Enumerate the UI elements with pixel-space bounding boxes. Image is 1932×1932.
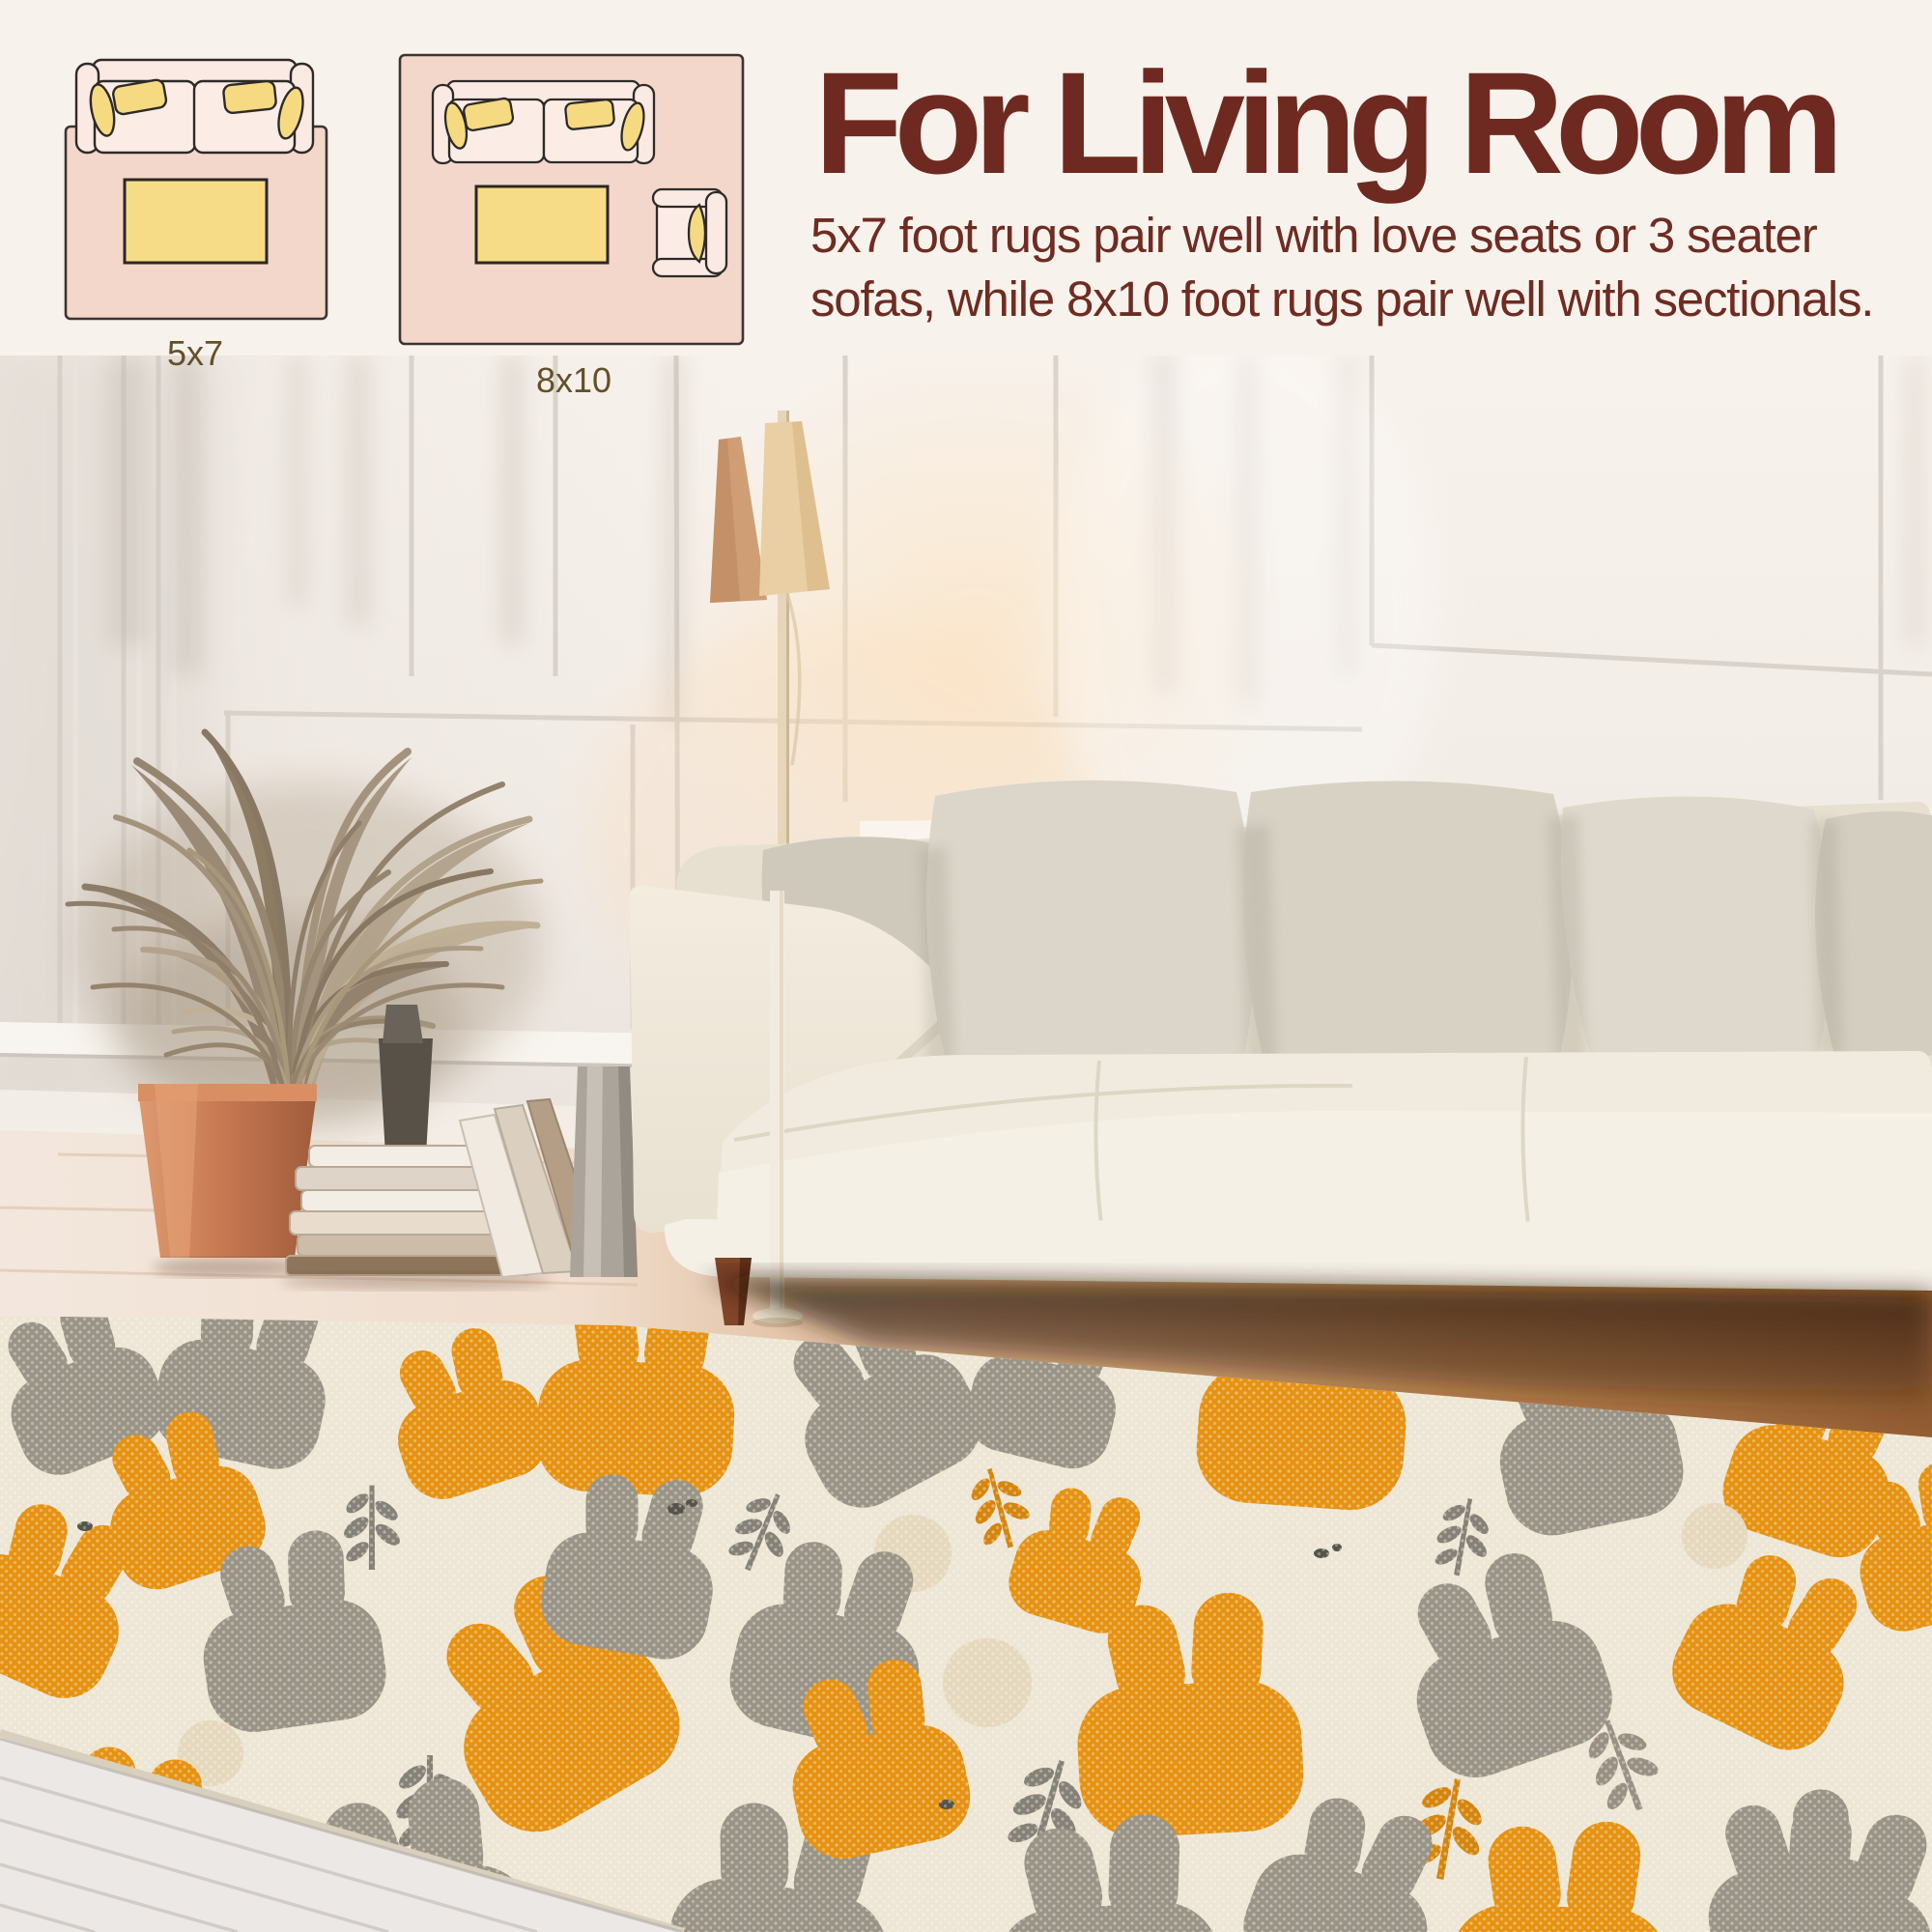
svg-text:8x10: 8x10	[536, 360, 611, 400]
svg-text:5x7: 5x7	[167, 333, 223, 373]
